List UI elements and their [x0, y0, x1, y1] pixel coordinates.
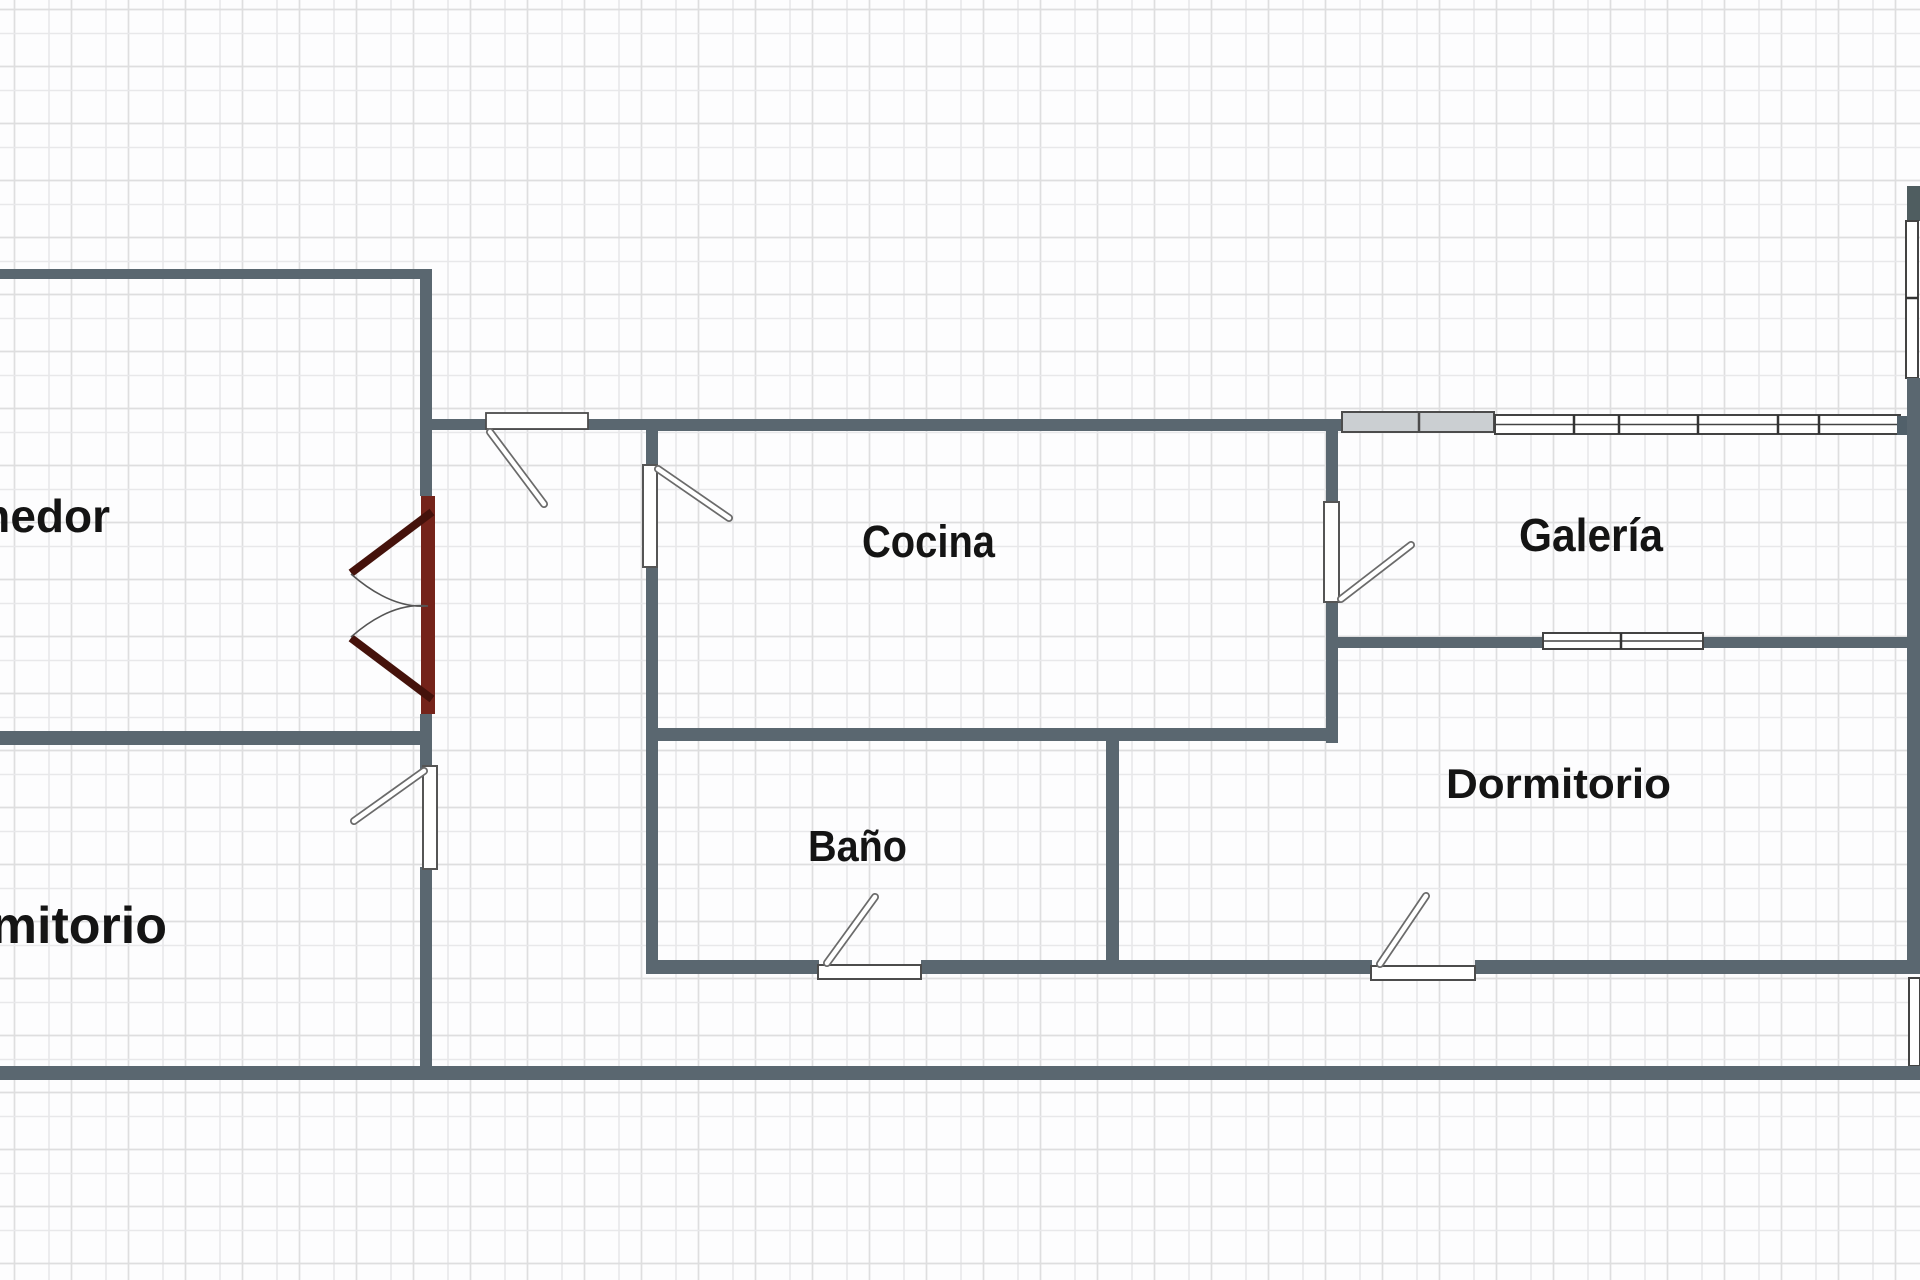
svg-text:Dormitorio: Dormitorio: [0, 897, 167, 955]
svg-text:Baño: Baño: [808, 822, 907, 871]
svg-text:Cocina: Cocina: [862, 516, 996, 567]
svg-text:Galería: Galería: [1519, 509, 1663, 561]
svg-text:Dormitorio: Dormitorio: [1446, 760, 1671, 807]
svg-text:Comedor: Comedor: [0, 490, 110, 542]
